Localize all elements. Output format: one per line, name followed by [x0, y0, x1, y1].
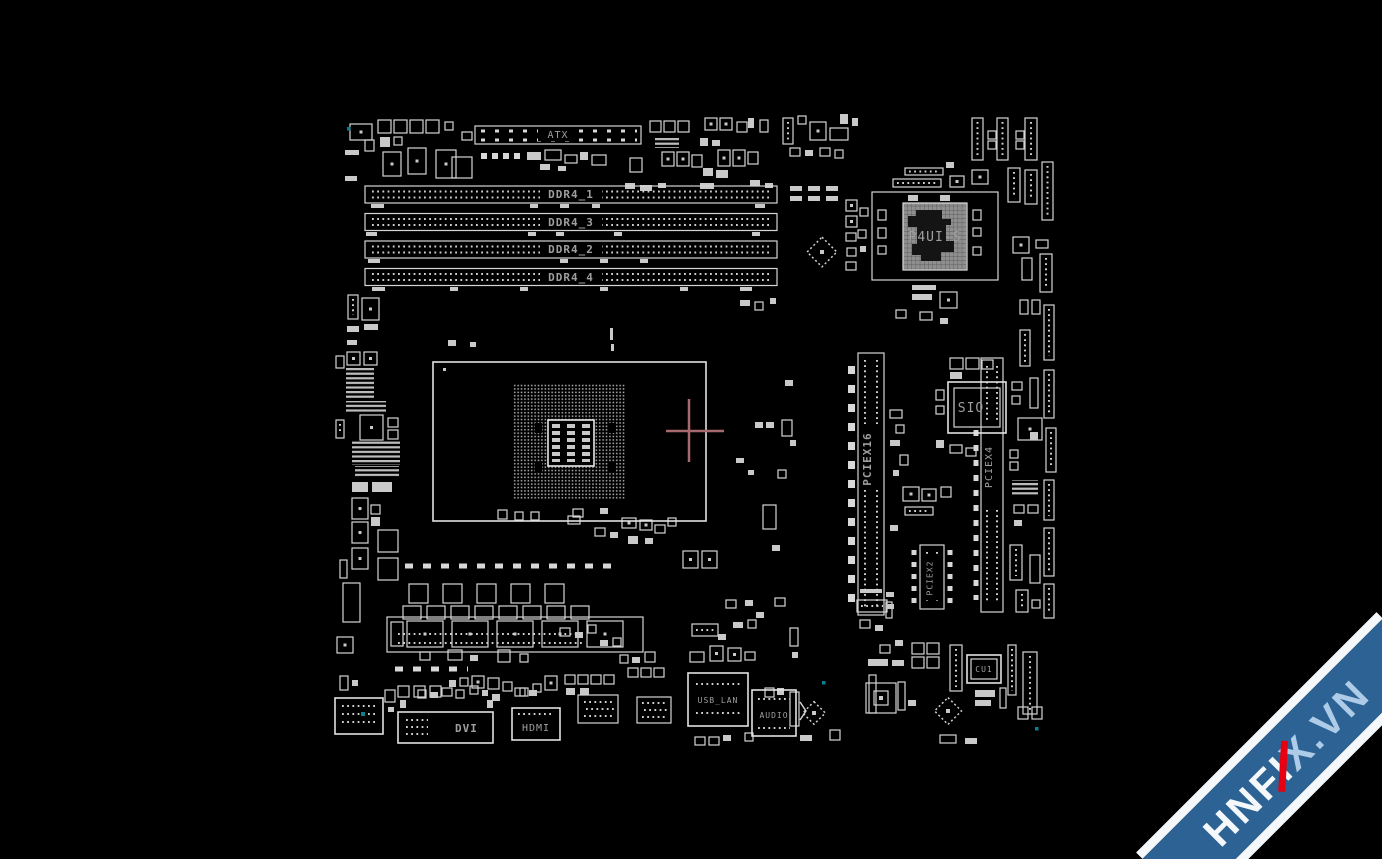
smd-component: [740, 300, 750, 306]
pciex2-label: PCIEX2: [926, 561, 935, 596]
smd-component: [560, 204, 569, 208]
smd-component: [947, 299, 950, 302]
smd-component: [640, 259, 648, 263]
sio-label: SIO: [958, 401, 984, 416]
smd-component: [792, 652, 798, 658]
smd-component: [352, 680, 358, 686]
smd-component: [680, 287, 688, 291]
smd-component: [527, 152, 541, 160]
smd-component: [540, 164, 550, 170]
smd-component: [477, 681, 480, 684]
smd-component: [355, 466, 399, 478]
smd-component: [347, 340, 357, 345]
smd-component: [380, 137, 390, 147]
smd-component: [580, 688, 589, 695]
smd-component: [347, 326, 359, 332]
smd-component: [910, 493, 913, 496]
background: [0, 0, 1382, 859]
smd-component: [725, 123, 728, 126]
smd-component: [808, 186, 820, 191]
pciex4-label: PCIEX4: [984, 446, 995, 488]
teal-marker: [822, 681, 826, 685]
smd-component: [369, 308, 372, 311]
smd-component: [975, 700, 991, 706]
smd-component: [715, 652, 718, 655]
smd-component: [708, 558, 711, 561]
dimm3-label: DDR4_2: [548, 243, 594, 256]
smd-component: [614, 232, 622, 236]
smd-component: [592, 204, 600, 208]
smd-component: [826, 186, 838, 191]
smd-component: [718, 634, 726, 640]
smd-component: [893, 470, 899, 476]
smd-component: [359, 507, 362, 510]
smd-component: [965, 738, 977, 744]
smd-component: [416, 160, 419, 163]
smd-component: [372, 482, 392, 492]
smd-component: [359, 531, 362, 534]
smd-component: [755, 422, 763, 428]
smd-component: [352, 441, 400, 465]
smd-component: [470, 655, 478, 661]
dvi-label: DVI: [455, 722, 478, 735]
teal-marker: [347, 127, 351, 131]
smd-component: [740, 287, 752, 291]
smd-component: [371, 204, 384, 208]
smd-component: [430, 692, 438, 698]
smd-component: [346, 366, 374, 400]
smd-component: [550, 682, 553, 685]
smd-component: [716, 170, 728, 178]
smd-component: [689, 558, 692, 561]
smd-component: [850, 220, 853, 223]
smd-component: [908, 700, 916, 706]
smd-component: [745, 600, 753, 606]
smd-component: [611, 344, 614, 351]
smd-component: [895, 640, 903, 646]
smd-component: [710, 123, 713, 126]
smd-component: [632, 657, 640, 663]
smd-component: [748, 470, 754, 475]
smd-component: [600, 259, 608, 263]
smd-component: [826, 196, 838, 201]
smd-component: [860, 246, 866, 252]
teal-marker: [1035, 727, 1039, 731]
smd-component: [772, 545, 780, 551]
smd-component: [344, 644, 347, 647]
atx-label: ATX: [547, 130, 568, 141]
smd-component: [371, 517, 380, 526]
smd-component: [850, 204, 853, 207]
smd-component: [928, 494, 931, 497]
smd-component: [556, 232, 564, 236]
smd-component: [956, 180, 959, 183]
smd-component: [790, 440, 796, 446]
smd-component: [610, 328, 613, 340]
dimm4-label: DDR4_4: [548, 271, 594, 284]
smd-component: [738, 157, 741, 160]
smd-component: [790, 196, 802, 201]
smd-component: [840, 114, 848, 124]
smd-component: [790, 186, 802, 191]
smd-component: [482, 690, 488, 696]
smd-component: [908, 195, 918, 201]
usb-lan-label: USB_LAN: [698, 696, 739, 705]
smd-component: [445, 163, 448, 166]
smd-component: [667, 158, 670, 161]
audio-label: AUDIO: [759, 711, 788, 720]
smd-component: [372, 287, 385, 291]
smd-component: [487, 700, 493, 708]
smd-component: [600, 287, 608, 291]
smd-component: [1030, 432, 1038, 440]
smd-component: [645, 538, 653, 544]
smd-component: [723, 157, 726, 160]
smd-component: [785, 380, 793, 386]
dimm2-label: DDR4_3: [548, 216, 594, 229]
smd-component: [936, 440, 944, 448]
smd-component: [346, 401, 386, 414]
smd-component: [890, 440, 900, 446]
smd-component: [886, 592, 894, 597]
smd-component: [805, 150, 813, 156]
smd-component: [756, 612, 764, 618]
smd-component: [560, 259, 568, 263]
smd-component: [450, 287, 458, 291]
smd-component: [628, 536, 638, 544]
smd-component: [755, 204, 765, 208]
smd-component: [368, 259, 380, 263]
smd-component: [912, 285, 936, 290]
smd-component: [733, 653, 736, 656]
smd-component: [748, 118, 754, 128]
smd-component: [979, 176, 982, 179]
smd-component: [703, 168, 713, 176]
smd-component: [604, 633, 607, 636]
smd-component: [600, 640, 608, 646]
smd-component: [890, 525, 898, 531]
smd-component: [800, 735, 812, 741]
smd-component: [448, 340, 456, 346]
smd-component: [808, 196, 820, 201]
smd-component: [770, 298, 776, 304]
smd-component: [359, 557, 362, 560]
smd-component: [366, 232, 377, 236]
smd-component: [777, 688, 784, 695]
smd-component: [1014, 520, 1022, 526]
smd-component: [712, 140, 720, 146]
smd-component: [345, 150, 359, 155]
smd-component: [360, 131, 363, 134]
smd-component: [470, 342, 476, 347]
smd-component: [566, 688, 575, 695]
smd-component: [645, 524, 648, 527]
smd-component: [736, 458, 744, 463]
pciex16-label: PCIEX16: [861, 432, 874, 485]
smd-component: [400, 700, 406, 708]
smd-component: [950, 372, 962, 379]
smd-component: [528, 232, 536, 236]
smd-component: [723, 735, 731, 741]
smd-component: [733, 622, 743, 628]
boardview-canvas[interactable]: ATX DDR4_1 DDR4_3 DDR4_2 DDR4_4 P4UI-S: [0, 0, 1382, 859]
smd-component: [766, 422, 774, 428]
chipset-label: P4UI-S: [909, 230, 962, 245]
smd-component: [369, 357, 372, 360]
smd-component: [364, 324, 378, 330]
smd-component: [1020, 244, 1023, 247]
teal-marker: [361, 712, 365, 716]
smd-component: [1012, 480, 1038, 496]
smd-component: [391, 163, 394, 166]
smd-component: [580, 152, 588, 160]
smd-component: [600, 508, 608, 514]
smd-component: [886, 604, 894, 609]
smd-component: [817, 130, 820, 133]
hdmi-label: HDMI: [522, 723, 550, 734]
smd-component: [682, 158, 685, 161]
smd-component: [752, 232, 760, 236]
smd-component: [875, 625, 883, 631]
smd-component: [352, 482, 368, 492]
smd-component: [860, 589, 882, 593]
smd-component: [892, 660, 904, 666]
smd-component: [388, 707, 394, 712]
smd-component: [529, 690, 537, 696]
smd-component: [940, 318, 948, 324]
smd-component: [370, 426, 373, 429]
smd-component: [852, 118, 858, 126]
smd-component: [655, 138, 679, 148]
smd-component: [530, 204, 538, 208]
smd-component: [940, 195, 950, 201]
smd-component: [975, 690, 995, 697]
smd-component: [520, 287, 528, 291]
smd-component: [345, 176, 357, 181]
smd-component: [700, 138, 708, 146]
smd-component: [492, 694, 500, 701]
smd-component: [449, 680, 456, 687]
smd-component: [1029, 428, 1032, 431]
cu1-label: CU1: [975, 665, 992, 674]
smd-component: [946, 162, 954, 168]
smd-component: [352, 357, 355, 360]
smd-component: [868, 659, 888, 666]
smd-component: [558, 166, 566, 171]
smd-component: [750, 180, 760, 186]
smd-component: [628, 522, 631, 525]
dimm1-label: DDR4_1: [548, 188, 594, 201]
smd-component: [610, 532, 618, 538]
smd-component: [912, 294, 932, 300]
